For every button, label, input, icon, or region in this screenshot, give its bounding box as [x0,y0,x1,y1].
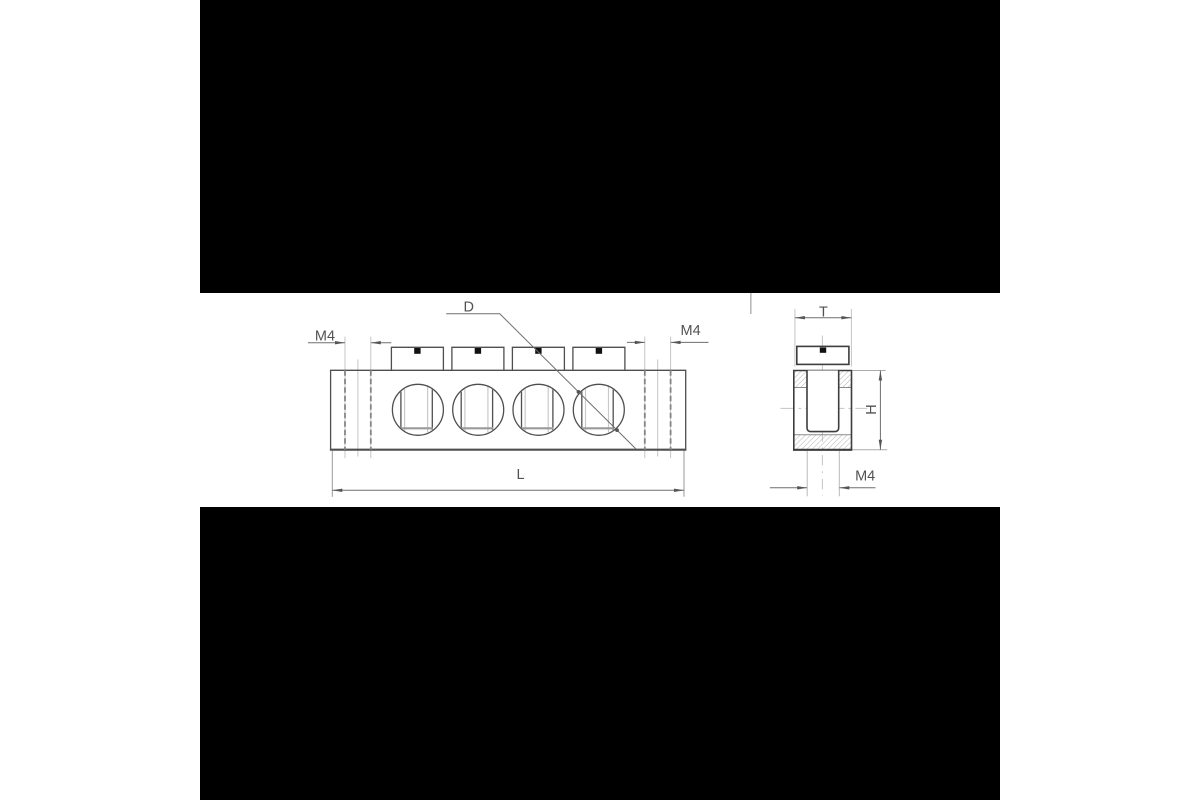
svg-text:M4: M4 [681,323,701,339]
svg-text:T: T [819,305,828,321]
svg-text:H: H [864,404,880,414]
svg-text:L: L [517,467,525,483]
svg-text:M4: M4 [855,468,875,484]
svg-text:M4: M4 [315,328,335,344]
